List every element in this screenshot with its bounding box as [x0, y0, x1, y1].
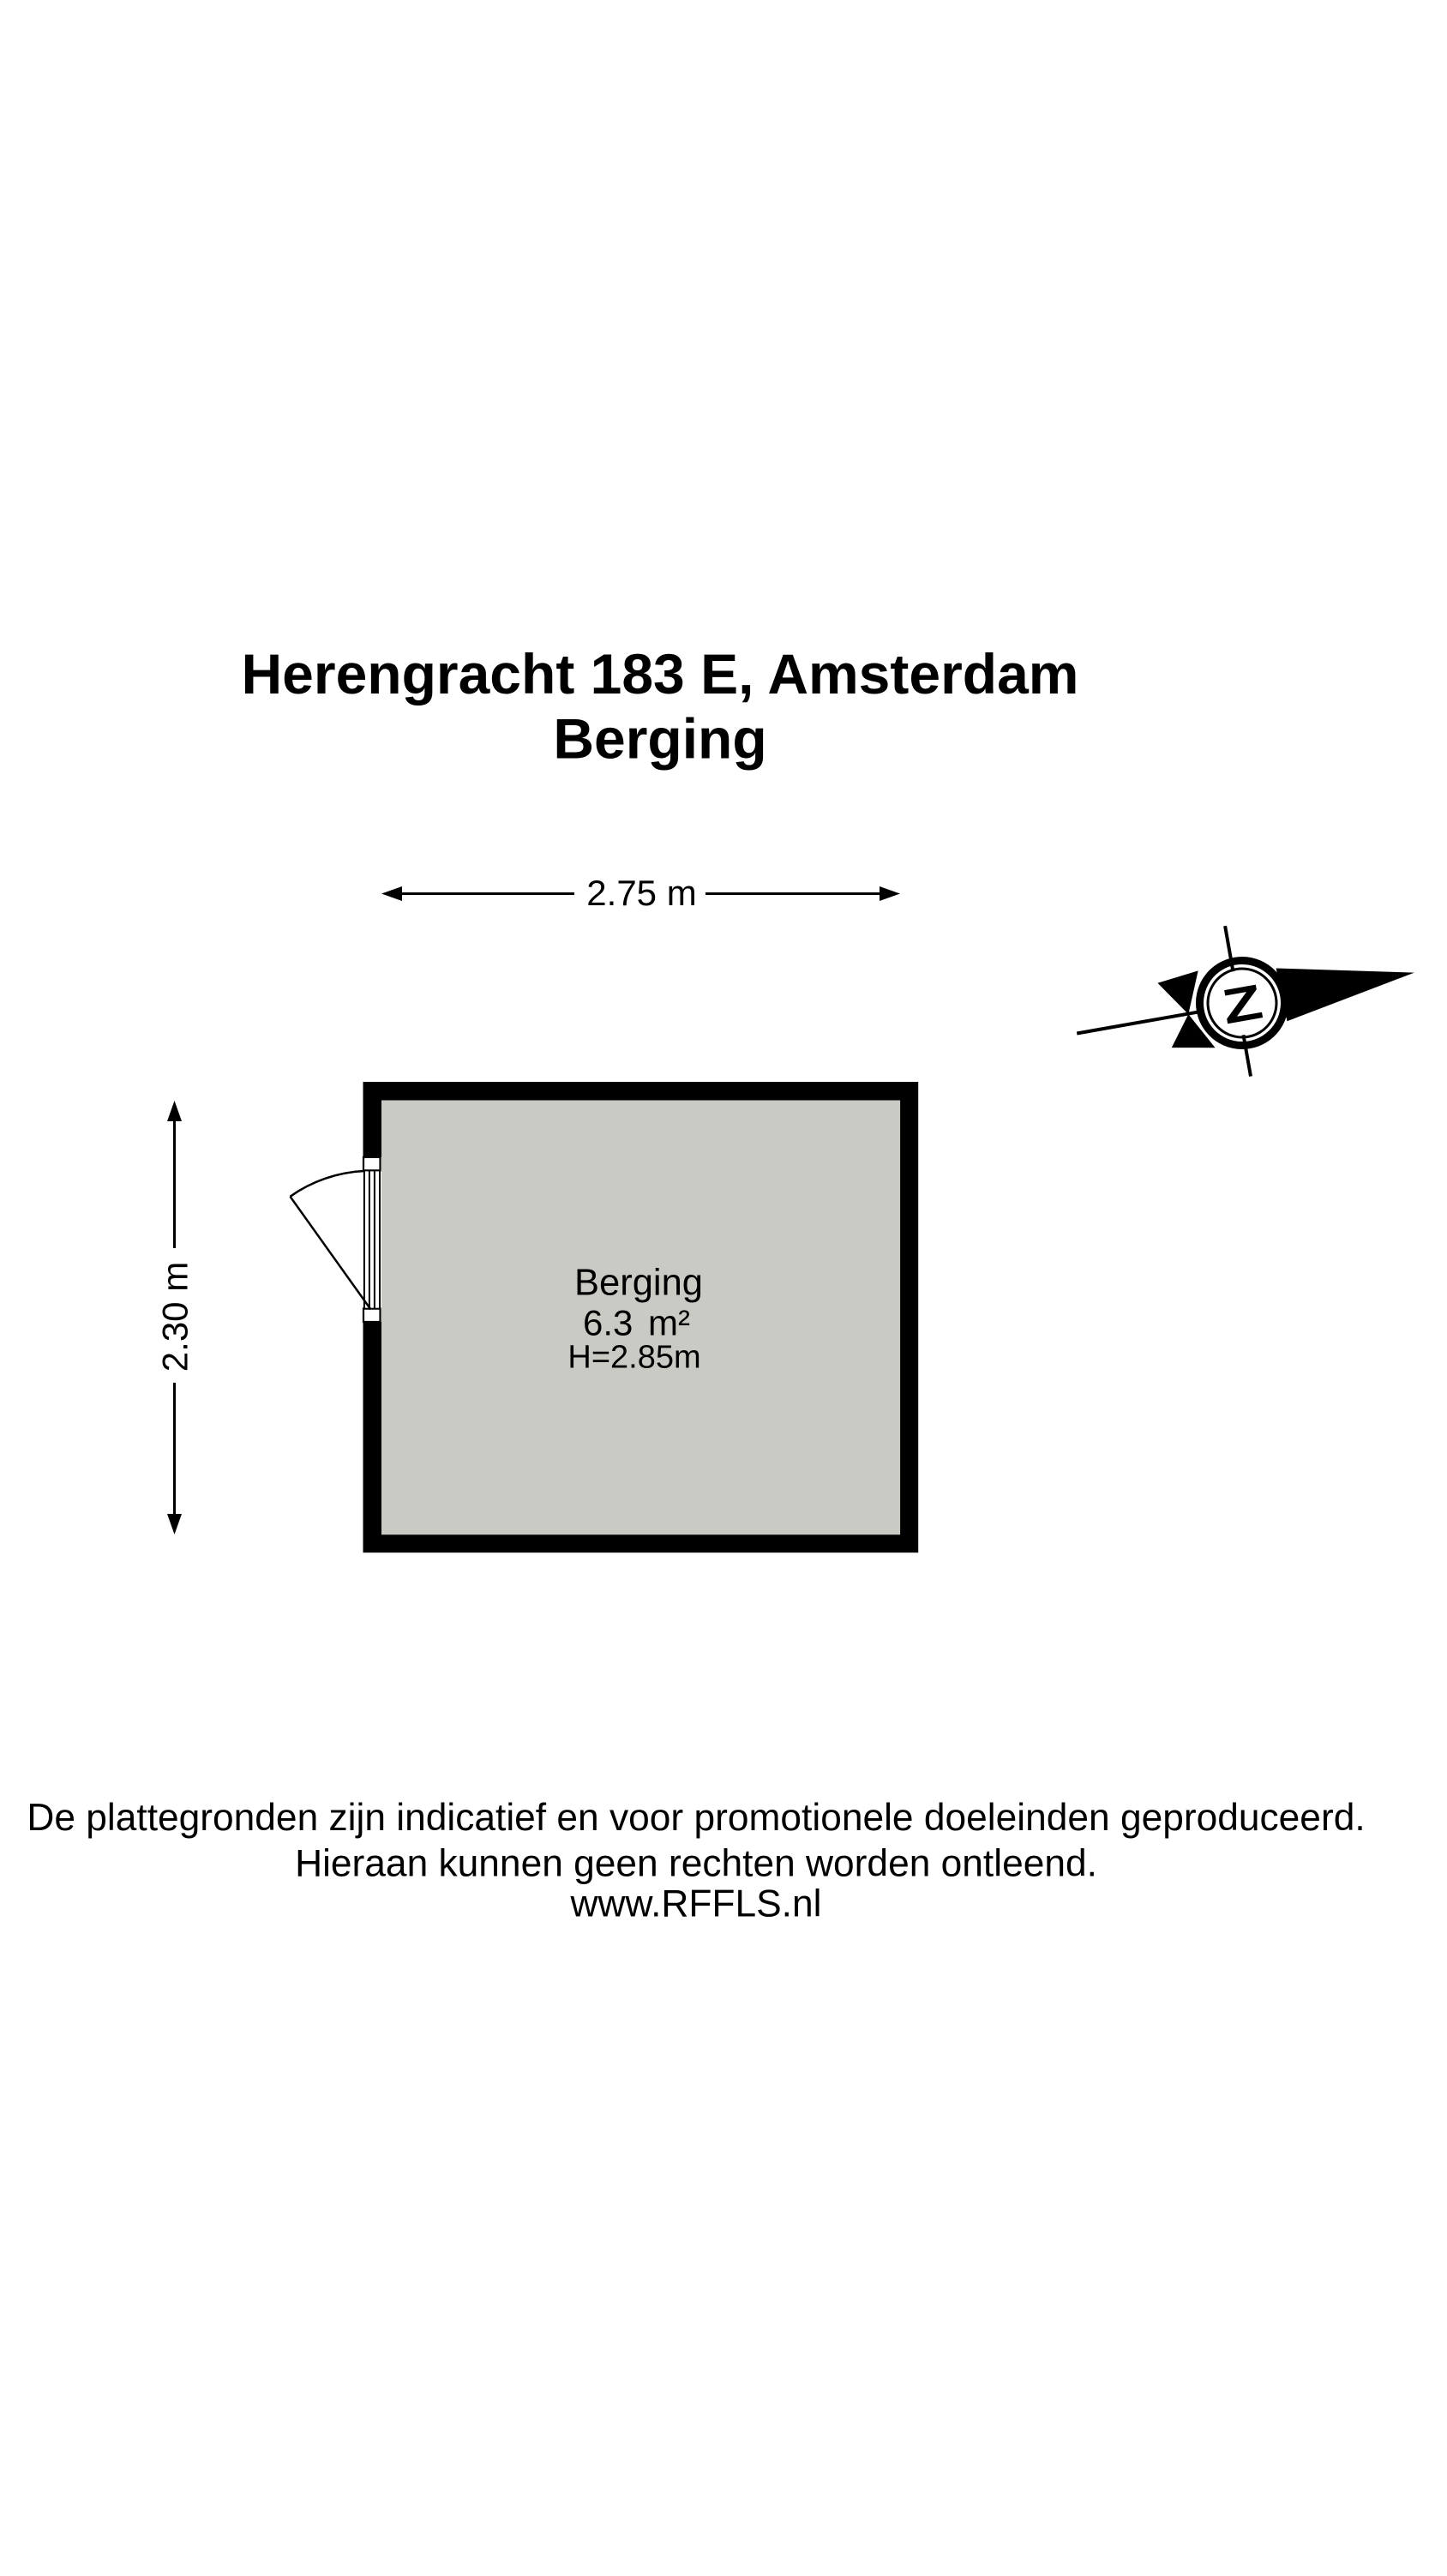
svg-text:Hieraan kunnen geen rechten wo: Hieraan kunnen geen rechten worden ontle… — [295, 1843, 1097, 1885]
svg-text:Herengracht 183 E, Amsterdam: Herengracht 183 E, Amsterdam — [242, 642, 1079, 706]
svg-text:De plattegronden zijn indicati: De plattegronden zijn indicatief en voor… — [27, 1797, 1365, 1839]
svg-text:Berging: Berging — [574, 1263, 703, 1304]
svg-text:www.RFFLS.nl: www.RFFLS.nl — [570, 1883, 822, 1925]
svg-text:2.30 m: 2.30 m — [155, 1262, 195, 1372]
svg-text:2.75 m: 2.75 m — [586, 873, 696, 913]
svg-text:H=2.85m: H=2.85m — [567, 1340, 700, 1376]
svg-text:6.3 m²: 6.3 m² — [583, 1303, 690, 1343]
svg-text:Berging: Berging — [553, 707, 766, 771]
